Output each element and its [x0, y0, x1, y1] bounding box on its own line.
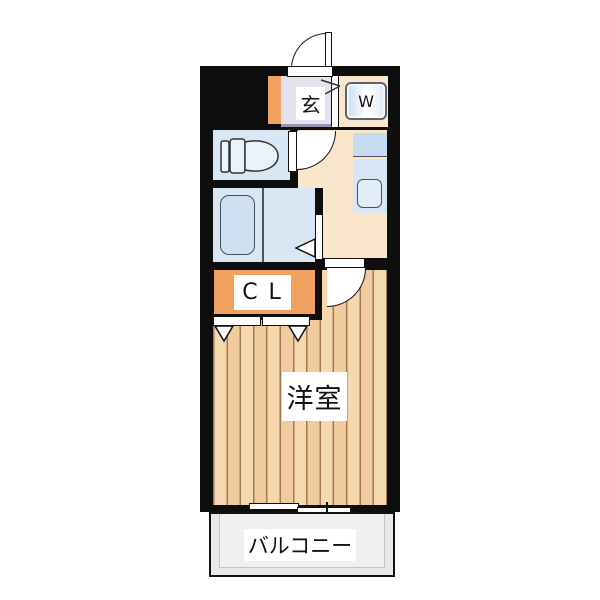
closet-folding-door-left [213, 316, 261, 326]
bathroom-divider [262, 188, 264, 262]
toilet-room [213, 130, 290, 180]
entrance-door-sill [287, 66, 333, 77]
genkan-washer-partition [331, 76, 339, 127]
balcony-label-text: バルコニー [248, 530, 353, 560]
bathroom-folding-door [315, 214, 323, 260]
kitchen-sink-icon [357, 179, 382, 208]
closet-label-text: C L [242, 280, 283, 305]
washing-machine-icon: W [345, 82, 387, 120]
balcony-label: バルコニー [244, 529, 356, 561]
closet-label: C L [234, 275, 291, 310]
entrance-door-leaf [325, 32, 332, 69]
sliding-window-left-panel [249, 503, 299, 510]
floorplan-canvas: 玄 W C L 洋室 バルコニー [0, 0, 600, 600]
entrance-label: 玄 [296, 87, 325, 120]
washer-label-text: W [358, 92, 374, 111]
entrance-shoe-cabinet-strip [268, 76, 281, 124]
western-room-label-text: 洋室 [287, 377, 343, 416]
toilet-door-leaf [288, 131, 297, 172]
room-door-sill [324, 258, 365, 268]
bathtub-icon [220, 195, 255, 255]
western-room-label: 洋室 [282, 372, 347, 421]
entrance-label-text: 玄 [301, 89, 321, 118]
closet-folding-door-right [262, 316, 310, 326]
entrance-door-swing-arc [291, 33, 327, 69]
genkan-step-edge [281, 124, 331, 127]
kitchen-counter-upper [353, 133, 387, 157]
